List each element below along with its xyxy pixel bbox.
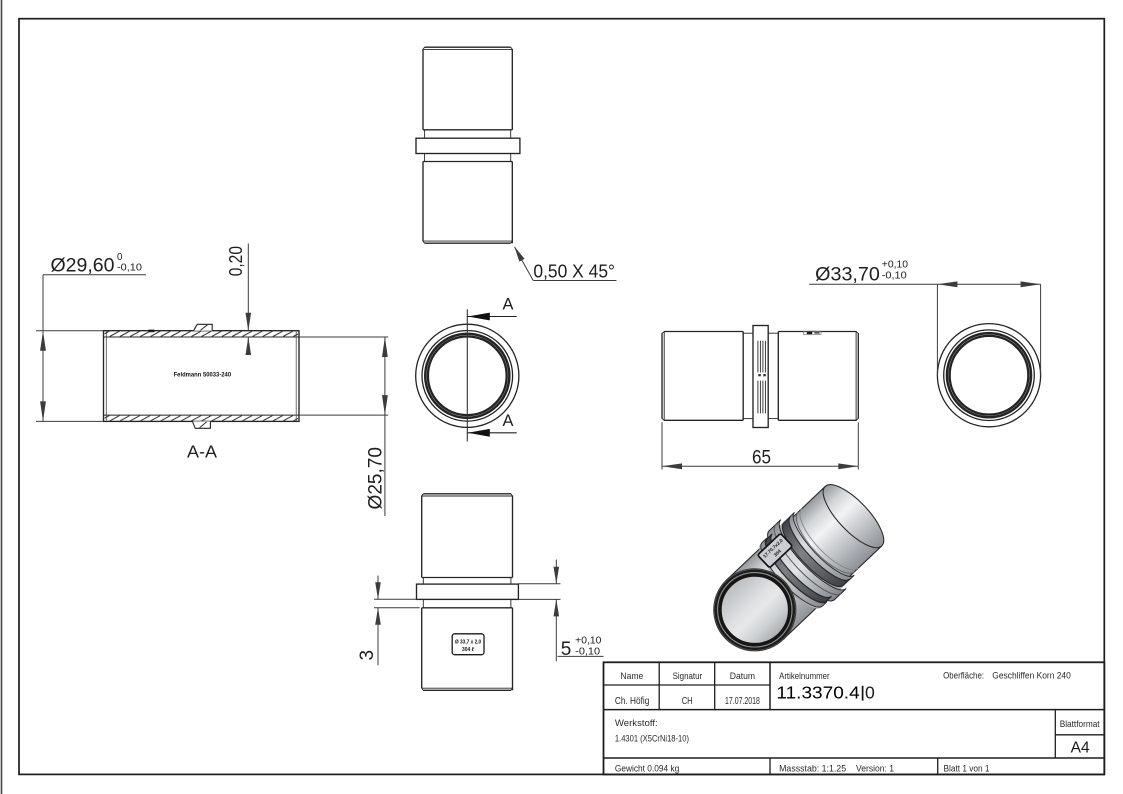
svg-text:Ø29,60: Ø29,60 — [51, 256, 115, 277]
svg-text:3: 3 — [357, 650, 378, 661]
svg-text:0,50 X 45°: 0,50 X 45° — [533, 261, 615, 282]
svg-text:Geschliffen Korn 240: Geschliffen Korn 240 — [992, 670, 1071, 681]
svg-text:Name: Name — [620, 671, 643, 682]
svg-text:1.4301 (X5CrNi18-10): 1.4301 (X5CrNi18-10) — [615, 734, 689, 745]
svg-text:A-A: A-A — [187, 442, 217, 462]
svg-text:-0,10: -0,10 — [117, 263, 142, 274]
svg-text:-0,10: -0,10 — [882, 271, 907, 282]
svg-text:A: A — [503, 296, 514, 314]
svg-text:Oberfläche:: Oberfläche: — [943, 670, 984, 681]
svg-text:Version: 1: Version: 1 — [856, 763, 894, 774]
svg-text:Ø 33,7 x 2,0: Ø 33,7 x 2,0 — [455, 639, 481, 645]
svg-text:0: 0 — [865, 682, 875, 702]
svg-text:304 ℓ: 304 ℓ — [462, 647, 474, 653]
svg-text:Datum: Datum — [730, 671, 755, 682]
svg-text:5: 5 — [561, 639, 572, 660]
svg-text:Ø33,70: Ø33,70 — [815, 264, 880, 285]
svg-text:Blatt 1 von 1: Blatt 1 von 1 — [944, 763, 990, 774]
svg-text:+0,10: +0,10 — [882, 259, 909, 270]
svg-text:CH: CH — [682, 696, 693, 707]
svg-text:+0,10: +0,10 — [575, 635, 602, 646]
svg-text:Gewicht 0.094 kg: Gewicht 0.094 kg — [615, 763, 679, 774]
svg-text:Signatur: Signatur — [673, 671, 703, 682]
svg-text:A: A — [503, 412, 514, 430]
svg-text:Blattformat: Blattformat — [1060, 719, 1100, 730]
svg-text:65: 65 — [752, 447, 771, 469]
svg-text:11.3370.4: 11.3370.4 — [776, 682, 860, 702]
svg-text:Artikelnummer: Artikelnummer — [779, 671, 830, 682]
svg-text:Ch. Höfig: Ch. Höfig — [615, 696, 650, 707]
svg-text:Feldmann 50033-240: Feldmann 50033-240 — [174, 372, 232, 379]
svg-text:Ø25,70: Ø25,70 — [365, 447, 386, 510]
svg-text:-0,10: -0,10 — [575, 647, 600, 658]
svg-text:17.07.2018: 17.07.2018 — [725, 696, 760, 707]
svg-text:0,20: 0,20 — [226, 246, 246, 276]
svg-text:Werkstoff:: Werkstoff: — [615, 718, 658, 729]
svg-text:Massstab: 1:1.25: Massstab: 1:1.25 — [779, 763, 846, 774]
svg-text:A4: A4 — [1071, 740, 1090, 757]
svg-text:0: 0 — [117, 252, 123, 263]
